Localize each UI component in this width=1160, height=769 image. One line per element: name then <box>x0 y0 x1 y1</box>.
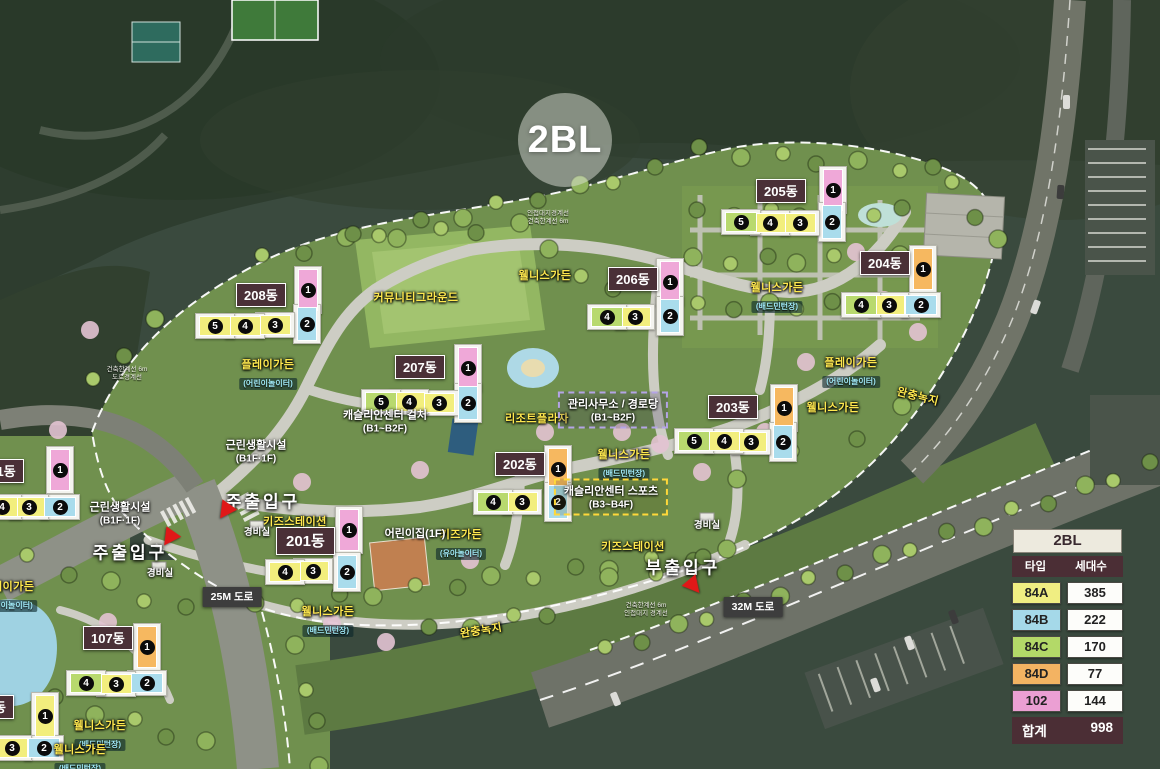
label-subtext: (어린이놀이터) <box>0 600 37 612</box>
facility-label: 완충녹지 <box>459 618 504 642</box>
label-text: 키즈가든 <box>440 529 482 541</box>
label-text: 웰니스가든 <box>518 270 571 282</box>
unit-number-circle: 1 <box>826 183 841 198</box>
label-text: 웰니스가든 <box>750 282 803 294</box>
label-text: 주출입구 <box>93 544 168 563</box>
label-text: 캐슬리안센터 스포츠 <box>564 486 658 498</box>
legend-row: 84A385 <box>1012 582 1123 604</box>
building-label: 204동 <box>860 251 910 275</box>
annotation-label: 건축한계선 6m도로경계선 <box>107 366 148 382</box>
label-text: 웰니스가든 <box>53 744 106 756</box>
facility-label: 키즈스테이션 <box>601 537 665 555</box>
legend-column-headers: 타입 세대수 <box>1012 556 1123 577</box>
label-text: 웰니스가든 <box>73 720 126 732</box>
unit-number-circle: 4 <box>0 500 10 515</box>
unit-number-circle: 4 <box>763 216 778 231</box>
unit-number-circle: 3 <box>22 500 37 515</box>
unit-number-circle: 3 <box>793 216 808 231</box>
building-label: 107동 <box>83 626 133 650</box>
unit-number-circle: 1 <box>551 462 566 477</box>
legend-row: 102144 <box>1012 690 1123 712</box>
unit-number-circle: 4 <box>79 676 94 691</box>
label-subtext: (B1~B2F) <box>343 424 427 435</box>
label-box: 캐슬리안센터 스포츠(B3~B4F) <box>554 479 668 516</box>
label-subtext: (유아놀이터) <box>436 548 486 560</box>
label-text: 근린생활시설 <box>226 440 287 452</box>
label-text: 캐슬리안센터 컬처 <box>343 410 427 422</box>
building-label: 208동 <box>236 283 286 307</box>
unit-number-circle: 3 <box>515 495 530 510</box>
legend-count-cell: 144 <box>1067 690 1123 712</box>
unit-number-circle: 4 <box>278 565 293 580</box>
label-text: 경비실 <box>694 520 720 531</box>
label-text: 커뮤니티그라운드 <box>374 292 459 304</box>
unit-number-circle: 3 <box>628 310 643 325</box>
building-label: 201동 <box>276 527 335 555</box>
building-label: 동 <box>0 695 14 719</box>
road-label: 32M 도로 <box>724 597 783 617</box>
label-subtext: (B3~B4F) <box>564 500 658 511</box>
label-subtext: 인접대지 경계선 <box>624 610 668 618</box>
unit-number-circle: 1 <box>916 262 931 277</box>
unit-number-circle: 2 <box>300 317 315 332</box>
annotation-label: 건축한계선 6m인접대지 경계선 <box>624 602 668 618</box>
label-text: 어린이집(1F) <box>385 528 446 540</box>
label-text: 완충녹지 <box>896 386 940 408</box>
unit-number-circle: 3 <box>268 318 283 333</box>
building-label: 207동 <box>395 355 445 379</box>
legend-count-cell: 170 <box>1067 636 1123 658</box>
legend-count-cell: 222 <box>1067 609 1123 631</box>
unit-number-circle: 1 <box>53 463 68 478</box>
legend-rows: 84A38584B22284C17084D77102144 <box>1012 582 1123 712</box>
legend-type-cell: 84B <box>1012 609 1061 631</box>
facility-label-boxed: 관리사무소 / 경로당(B1~B2F) <box>558 392 668 429</box>
unit-number-circle: 2 <box>461 396 476 411</box>
facility-label: 웰니스가든(배드민턴장) <box>53 740 106 769</box>
facility-label: 웰니스가든 <box>518 266 571 284</box>
legend-total-label: 합계 <box>1022 720 1047 740</box>
facility-label: 근린생활시설(B1F·1F) <box>90 498 151 527</box>
facility-label: 어린이집(1F) <box>385 524 446 542</box>
building-label: 202동 <box>495 452 545 476</box>
building-label: 205동 <box>756 179 806 203</box>
legend-title: 2BL <box>1013 529 1122 553</box>
entrance-label: 부출입구 <box>646 554 721 579</box>
block-badge: 2BL <box>518 93 612 187</box>
unit-number-circle: 1 <box>461 361 476 376</box>
label-text: 키즈스테이션 <box>601 541 665 553</box>
unit-number-circle: 1 <box>342 523 357 538</box>
label-text: 25M 도로 <box>203 587 262 607</box>
unit-number-circle: 2 <box>825 215 840 230</box>
unit-number-circle: 4 <box>238 319 253 334</box>
legend-type-cell: 84C <box>1012 636 1061 658</box>
legend-row: 84B222 <box>1012 609 1123 631</box>
facility-label: 커뮤니티그라운드 <box>374 288 459 306</box>
label-subtext: (B1F·1F) <box>226 454 287 465</box>
guard-label: 경비실 <box>244 522 270 540</box>
label-subtext: (배드민턴장) <box>55 763 105 769</box>
facility-label: 플레이가든(어린이놀이터) <box>822 353 880 389</box>
legend-count-cell: 77 <box>1067 663 1123 685</box>
legend-total-row: 합계 998 <box>1012 717 1123 744</box>
label-text: 웰니스가든 <box>301 606 354 618</box>
unit-number-circle: 3 <box>744 435 759 450</box>
legend-col-type: 타입 <box>1012 558 1059 574</box>
facility-label: 플레이가든(어린이놀이터) <box>0 577 37 613</box>
label-subtext: (배드민턴장) <box>752 301 802 313</box>
unit-number-circle: 2 <box>776 435 791 450</box>
label-text: 관리사무소 / 경로당 <box>568 399 658 411</box>
site-plan-map: 2BL 12345205동1234206동1234204동12345208동12… <box>0 0 1160 769</box>
unit-number-circle: 5 <box>687 434 702 449</box>
guard-label: 경비실 <box>147 563 173 581</box>
facility-label: 플레이가든(어린이놀이터) <box>239 355 297 391</box>
legend-row: 84C170 <box>1012 636 1123 658</box>
legend-col-count: 세대수 <box>1059 558 1123 574</box>
facility-label: 웰니스가든 <box>806 398 859 416</box>
annotation-label: 인접대지경계선건축한계선 6m <box>527 210 569 226</box>
unit-number-circle: 1 <box>663 275 678 290</box>
label-subtext: (어린이놀이터) <box>239 378 297 390</box>
unit-number-circle: 2 <box>914 298 929 313</box>
building-label: 203동 <box>708 395 758 419</box>
legend-table: 2BL 타입 세대수 84A38584B22284C17084D77102144… <box>1012 529 1123 744</box>
facility-label: 웰니스가든(배드민턴장) <box>597 445 650 481</box>
entrance-label: 주출입구 <box>93 539 168 564</box>
label-text: 플레이가든 <box>824 357 877 369</box>
label-text: 32M 도로 <box>724 597 783 617</box>
label-text: 부출입구 <box>646 559 721 578</box>
label-text: 근린생활시설 <box>90 502 151 514</box>
legend-total-value: 998 <box>1090 720 1113 740</box>
facility-label: 웰니스가든(배드민턴장) <box>750 278 803 314</box>
block-badge-label: 2BL <box>528 119 603 162</box>
unit-number-circle: 4 <box>717 434 732 449</box>
legend-type-cell: 84A <box>1012 582 1061 604</box>
unit-number-circle: 3 <box>306 564 321 579</box>
building-label: 206동 <box>608 267 658 291</box>
unit-number-circle: 3 <box>882 298 897 313</box>
label-text: 건축한계선 6m <box>624 602 668 610</box>
facility-label: 캐슬리안센터 컬처(B1~B2F) <box>343 406 427 435</box>
facility-label: 완충녹지 <box>895 382 941 410</box>
unit-number-circle: 1 <box>777 401 792 416</box>
road-label: 25M 도로 <box>203 587 262 607</box>
unit-number-circle: 5 <box>734 215 749 230</box>
label-text: 건축한계선 6m <box>107 366 148 374</box>
label-text: 플레이가든 <box>0 581 35 593</box>
facility-label-boxed: 캐슬리안센터 스포츠(B3~B4F) <box>554 479 668 516</box>
building-label: 101동 <box>0 459 24 483</box>
guard-label: 경비실 <box>694 515 720 533</box>
label-text: 경비실 <box>147 568 173 579</box>
label-subtext: (B1~B2F) <box>568 413 658 424</box>
legend-row: 84D77 <box>1012 663 1123 685</box>
unit-number-circle: 4 <box>600 310 615 325</box>
legend-type-cell: 84D <box>1012 663 1061 685</box>
unit-number-circle: 2 <box>663 309 678 324</box>
label-text: 경비실 <box>244 527 270 538</box>
unit-number-circle: 1 <box>38 709 53 724</box>
unit-number-circle: 2 <box>53 500 68 515</box>
unit-number-circle: 1 <box>301 283 316 298</box>
facility-label: 근린생활시설(B1F·1F) <box>226 436 287 465</box>
label-subtext: (배드민턴장) <box>303 625 353 637</box>
label-box: 관리사무소 / 경로당(B1~B2F) <box>558 392 668 429</box>
unit-number-circle: 2 <box>37 741 52 756</box>
unit-number-circle: 4 <box>486 495 501 510</box>
legend-count-cell: 385 <box>1067 582 1123 604</box>
label-text: 플레이가든 <box>241 359 294 371</box>
unit-number-circle: 1 <box>140 640 155 655</box>
facility-label: 웰니스가든(배드민턴장) <box>301 602 354 638</box>
label-text: 인접대지경계선 <box>527 210 569 218</box>
label-subtext: (B1F·1F) <box>90 516 151 527</box>
legend-type-cell: 102 <box>1012 690 1061 712</box>
label-subtext: (어린이놀이터) <box>822 376 880 388</box>
unit-number-circle: 3 <box>109 677 124 692</box>
unit-number-circle: 3 <box>5 741 20 756</box>
unit-number-circle: 2 <box>340 565 355 580</box>
label-subtext: 도로경계선 <box>107 374 148 382</box>
label-subtext: 건축한계선 6m <box>527 218 569 226</box>
unit-number-circle: 5 <box>208 319 223 334</box>
label-text: 완충녹지 <box>459 622 503 640</box>
unit-number-circle: 2 <box>140 676 155 691</box>
unit-number-circle: 3 <box>432 396 447 411</box>
label-text: 웰니스가든 <box>806 402 859 414</box>
label-text: 웰니스가든 <box>597 449 650 461</box>
unit-number-circle: 4 <box>854 298 869 313</box>
